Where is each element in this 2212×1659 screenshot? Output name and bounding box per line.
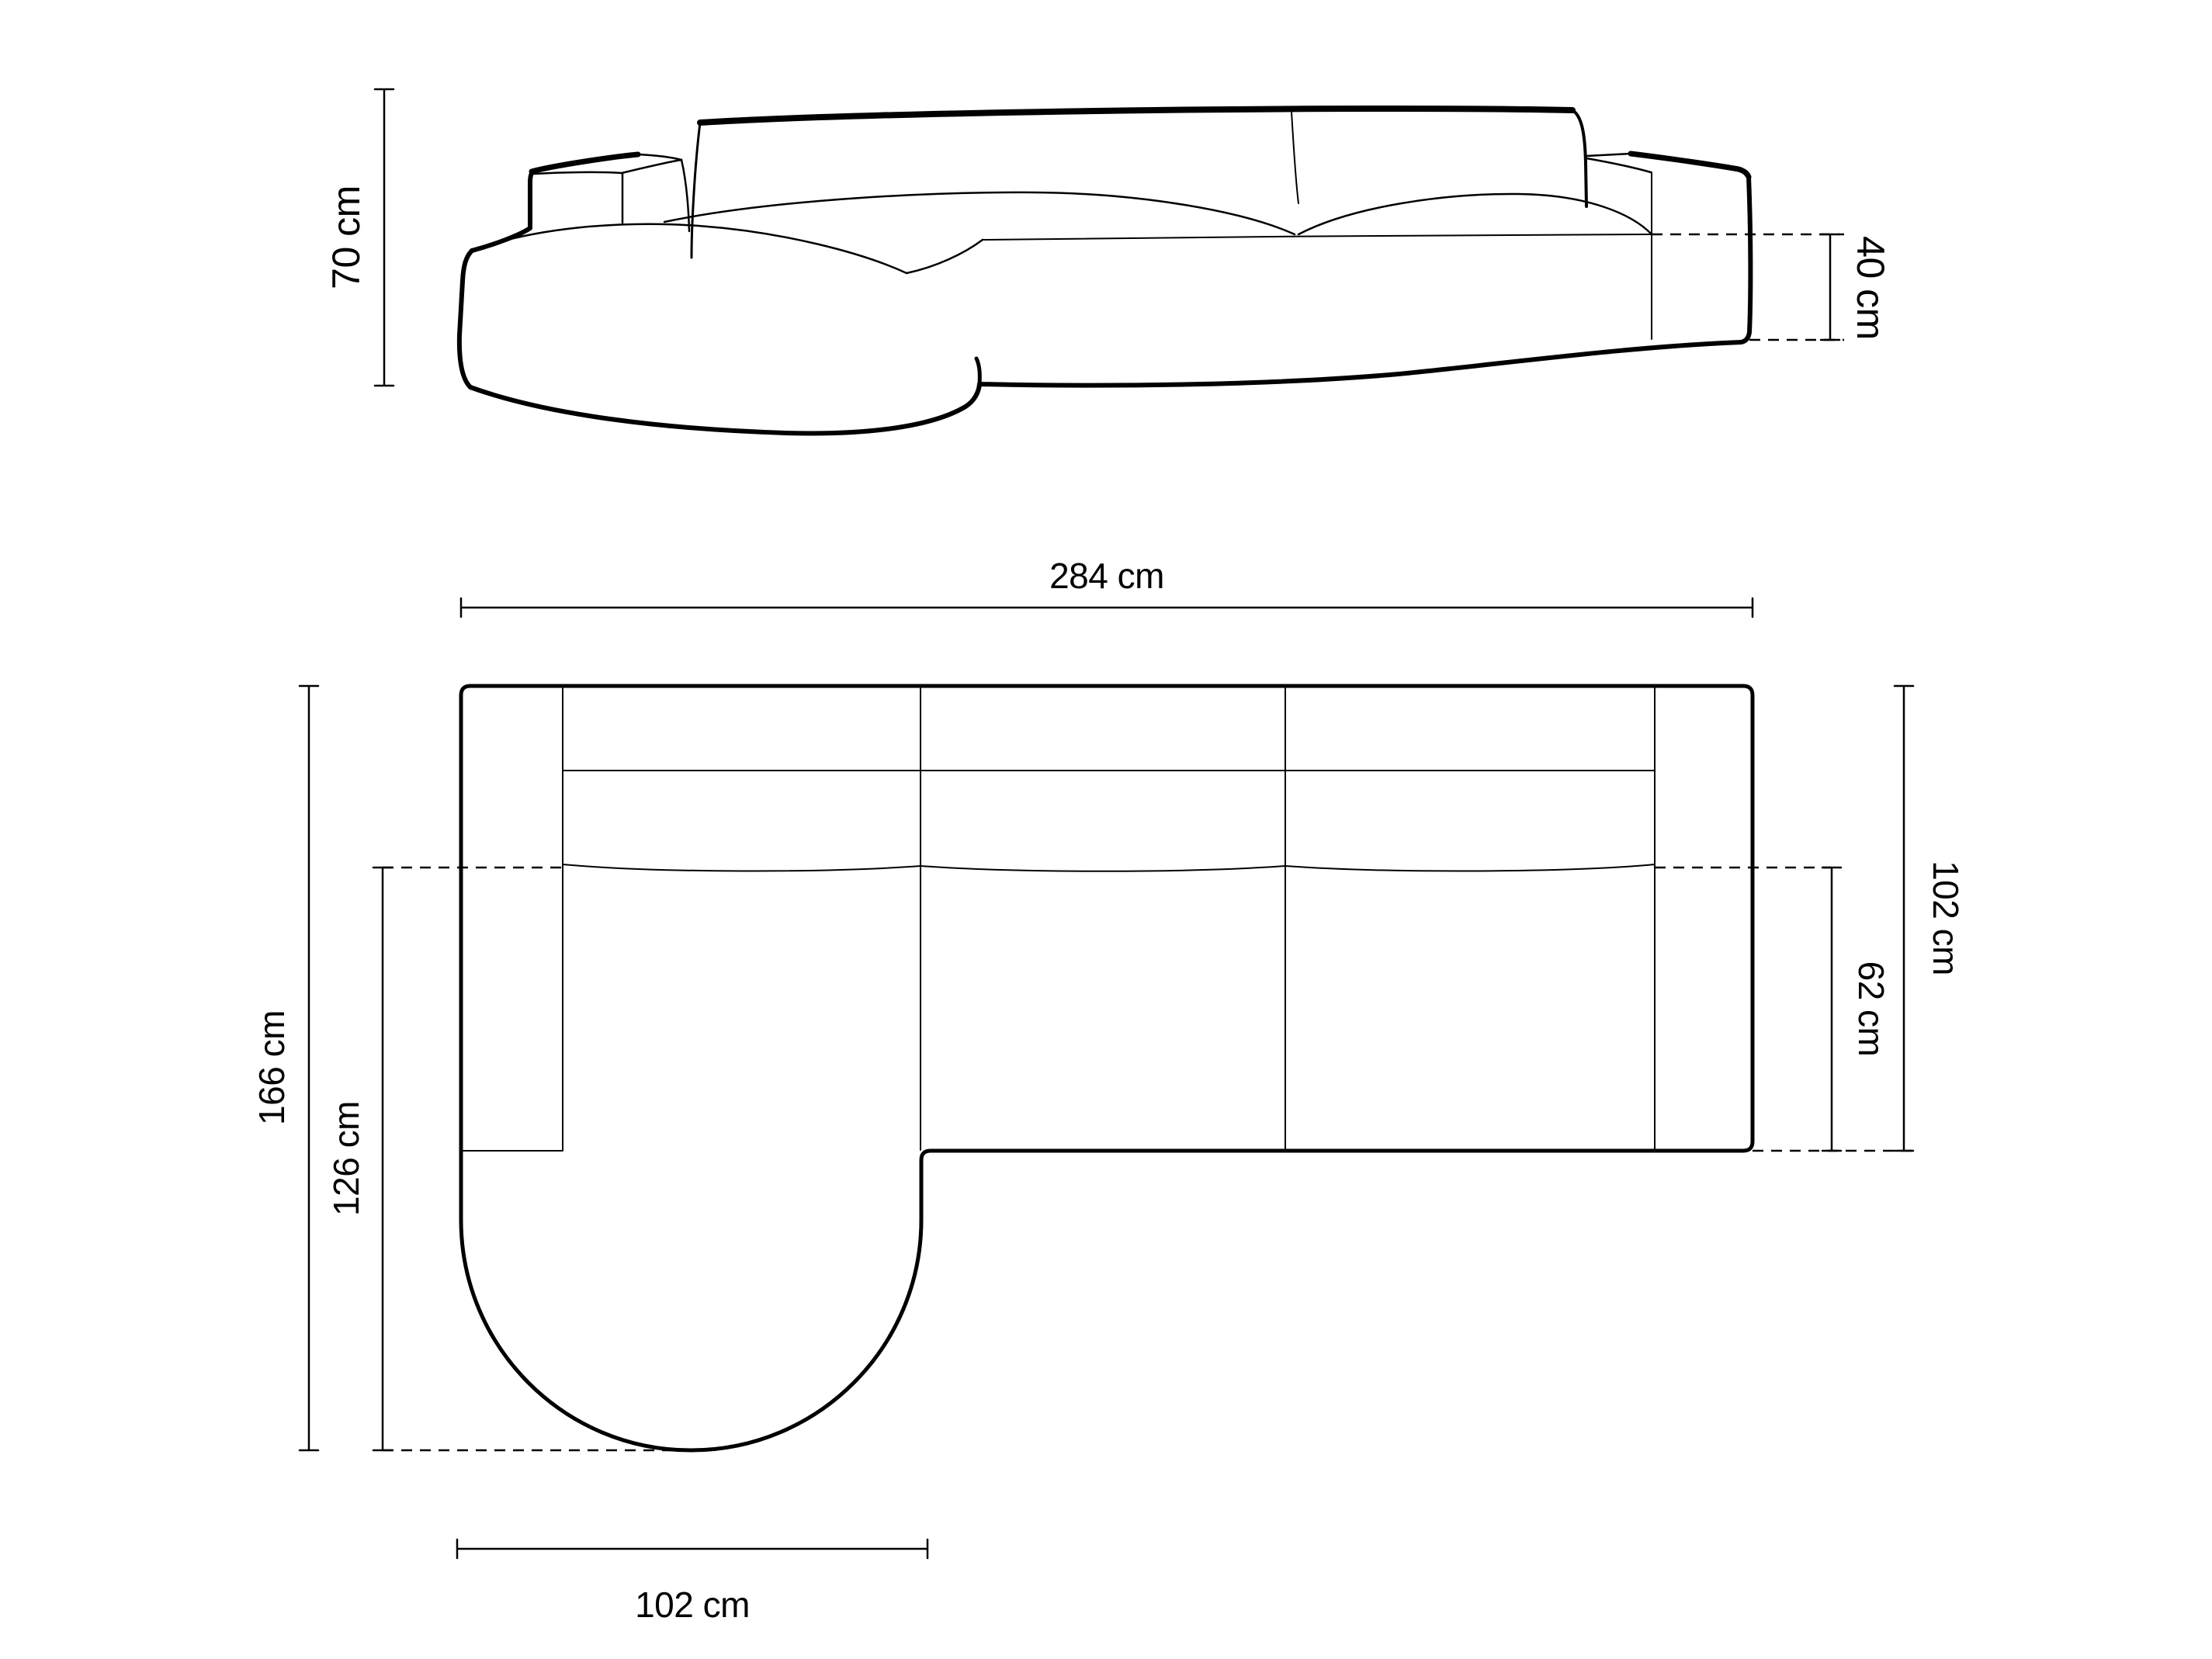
front-seat-cushion-2-arc	[1298, 194, 1652, 234]
plan-width-dimension: 284 cm	[461, 556, 1753, 617]
dimension-line	[1895, 686, 1913, 1151]
plan-body-depth-dimension: 102 cm	[1895, 686, 1966, 1151]
front-right-armrest-right-edge	[1741, 177, 1750, 342]
plan-total-depth-label: 166 cm	[251, 1010, 292, 1125]
front-left-armrest-top-back-edge	[638, 154, 681, 160]
plan-chaise-depth-dimension: 126 cm	[326, 868, 392, 1450]
front-left-armrest-front-top-edge	[534, 172, 622, 174]
front-sofa-drawing	[459, 109, 1751, 433]
front-right-armrest-top-edge	[1631, 154, 1749, 177]
front-left-armrest-left-edge	[472, 172, 532, 251]
front-chaise-body-outline	[459, 251, 979, 433]
plan-inner-lines	[462, 686, 1655, 1151]
plan-body-depth-label: 102 cm	[1926, 861, 1966, 975]
front-view: 70 cm 40 cm	[324, 89, 1892, 433]
plan-chaise-width-label: 102 cm	[635, 1585, 750, 1625]
front-backrest-seam	[1291, 112, 1298, 203]
dimension-line	[1822, 868, 1841, 1151]
dimension-line	[461, 598, 1753, 617]
plan-cushion-front-line	[563, 864, 1655, 871]
plan-chaise-depth-label: 126 cm	[326, 1101, 366, 1216]
dimension-line	[457, 1540, 927, 1558]
front-seat-front-line	[983, 234, 1652, 240]
front-backrest-left-edge	[692, 123, 700, 258]
plan-chaise-width-dimension: 102 cm	[457, 1540, 927, 1625]
front-height-label: 70 cm	[324, 185, 368, 289]
dimension-line	[300, 686, 318, 1450]
plan-seat-depth-label: 62 cm	[1851, 961, 1891, 1057]
sofa-dimension-diagram: 70 cm 40 cm	[0, 0, 2212, 1659]
front-main-bottom-edge	[979, 342, 1741, 386]
front-right-armrest-back-edge	[1586, 154, 1631, 156]
plan-dashed-references	[383, 868, 1913, 1450]
dimension-line	[1821, 234, 1839, 340]
front-left-armrest-back-right-edge	[681, 160, 689, 231]
front-seat-cushion-1-arc	[664, 192, 1295, 234]
front-right-armrest-front-top-edge	[1586, 158, 1651, 172]
front-seat-height-label: 40 cm	[1849, 236, 1892, 340]
front-chaise-cushion-valley	[907, 240, 983, 273]
front-chaise-right-cap	[976, 358, 979, 384]
front-left-armrest-top-edge	[532, 154, 638, 171]
front-left-armrest-topface-right-edge	[622, 160, 681, 173]
plan-total-depth-dimension: 166 cm	[251, 686, 318, 1450]
plan-seat-depth-dimension: 62 cm	[1822, 868, 1891, 1151]
plan-width-label: 284 cm	[1049, 556, 1164, 596]
plan-sofa-outline	[461, 686, 1753, 1450]
diagram-canvas: 70 cm 40 cm	[0, 0, 2212, 1659]
front-height-dimension: 70 cm	[324, 89, 394, 386]
front-backrest-top-edge	[700, 109, 1572, 123]
plan-view: 284 cm 166 cm 126 cm 102 cm 62 cm 102 cm	[251, 556, 1966, 1625]
front-seat-height-dimension: 40 cm	[1652, 234, 1892, 340]
dimension-line	[375, 89, 394, 386]
dimension-line	[373, 868, 392, 1450]
front-backrest-right-edge	[1572, 110, 1586, 206]
